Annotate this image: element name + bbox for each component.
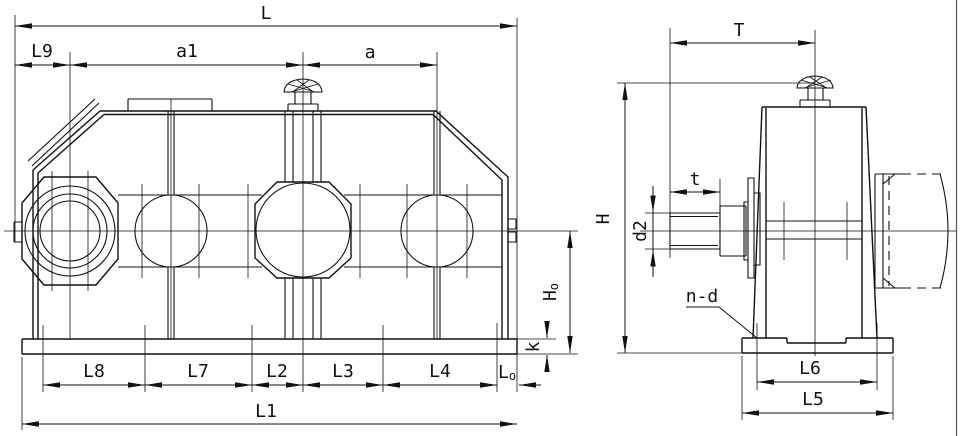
technical-drawing-canvas: L L9 a1 a L8 L7	[0, 0, 963, 436]
left-view: L L9 a1 a L8 L7	[4, 3, 578, 430]
label-n-d: n-d	[686, 286, 757, 338]
dim-label-L8: L8	[83, 361, 105, 382]
dim-a1: a1	[70, 41, 303, 65]
dim-label-L4: L4	[429, 361, 451, 382]
input-shaft-side	[670, 178, 760, 278]
dim-label-L5: L5	[802, 389, 824, 410]
vertical-centerlines	[70, 52, 437, 392]
n-d-label: n-d	[686, 286, 719, 307]
dim-t: t	[670, 169, 720, 192]
dim-a: a	[303, 42, 437, 65]
oil-plug-tab	[508, 219, 516, 242]
dim-label-L6: L6	[799, 358, 821, 379]
base-right-outline	[742, 338, 893, 353]
dim-L8: L8	[43, 361, 145, 385]
inspection-cover-outline	[128, 99, 212, 111]
extension-lines-right-paths	[617, 28, 893, 420]
dim-L6: L6	[757, 358, 877, 382]
dimensions-right: T t H d2 n-d L6	[593, 20, 893, 413]
inspection-cover	[128, 99, 212, 111]
dim-label-a: a	[365, 42, 376, 63]
dim-label-L7: L7	[187, 361, 209, 382]
dim-label-L9: L9	[31, 41, 53, 62]
base-plate	[22, 339, 517, 354]
gear-reducer-dimension-drawing: L L9 a1 a L8 L7	[0, 0, 963, 436]
dim-label-L3: L3	[332, 361, 354, 382]
dim-L2: L2	[252, 361, 303, 385]
dim-k: k	[523, 323, 547, 370]
dim-L1: L1	[22, 401, 517, 424]
dim-L9: L9	[15, 41, 70, 65]
dim-L4: L4	[383, 361, 497, 385]
corner-flange-lines	[28, 99, 99, 166]
dim-label-k: k	[523, 341, 544, 352]
dim-L7: L7	[145, 361, 252, 385]
dim-label-L1: L1	[255, 401, 277, 422]
dim-label-T: T	[734, 20, 745, 41]
dim-L3: L3	[303, 361, 383, 385]
dim-L0: Lo	[498, 362, 541, 385]
dim-L5: L5	[742, 389, 893, 413]
dim-H: H	[593, 83, 625, 353]
dimensions-left: L L9 a1 a L8 L7	[15, 3, 570, 424]
dim-label-L: L	[261, 3, 272, 24]
dim-label-L2: L2	[266, 361, 288, 382]
base-plate-right	[742, 338, 893, 353]
dim-label-d2: d2	[630, 220, 651, 242]
n-d-leader-line	[686, 307, 757, 338]
dim-label-a1: a1	[176, 41, 198, 62]
dim-label-t: t	[690, 169, 701, 190]
dim-T: T	[670, 20, 815, 43]
housing-outline	[28, 99, 508, 339]
oil-plug-outline	[508, 219, 516, 242]
extension-lines-right	[617, 28, 893, 420]
dim-label-H: H	[593, 214, 614, 225]
dim-H0: Ho	[540, 231, 570, 353]
through-shaft-lines	[766, 221, 862, 239]
dim-L: L	[15, 3, 517, 26]
dim-label-L0: Lo	[498, 362, 516, 383]
base-plate-outline	[22, 339, 517, 354]
dim-d2: d2	[630, 186, 653, 277]
right-view: T t H d2 n-d L6	[593, 20, 956, 420]
dim-label-H0: Ho	[540, 283, 561, 301]
